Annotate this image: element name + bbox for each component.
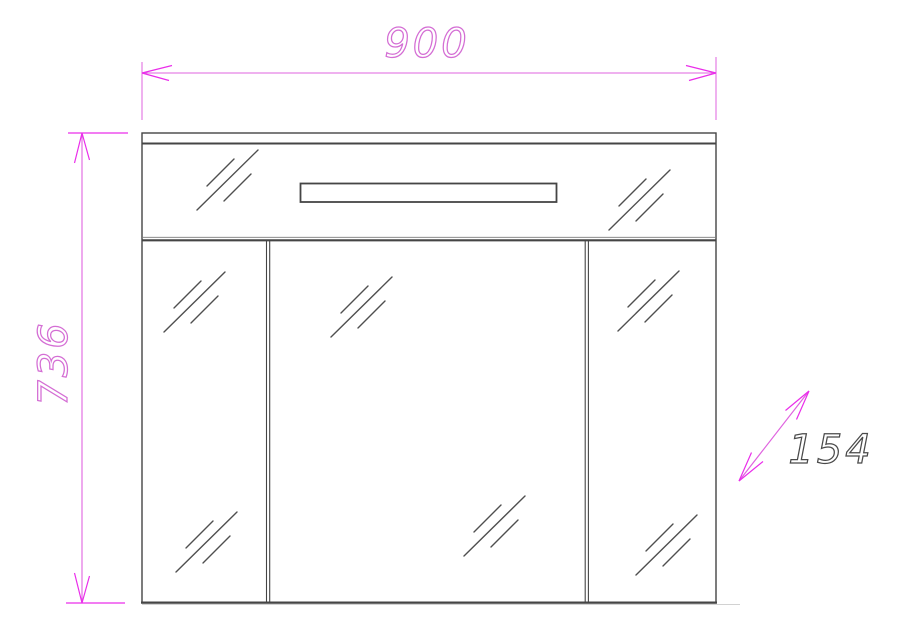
hatch-left-door-lower bbox=[176, 512, 237, 572]
technical-drawing: 900 736 154 bbox=[0, 0, 900, 636]
height-dim-label: 736 bbox=[31, 320, 77, 405]
hatch-right-door-upper bbox=[618, 271, 679, 331]
hatch-top-left-panel bbox=[197, 150, 258, 210]
hatch-top-right-panel bbox=[609, 170, 670, 230]
light-fixture bbox=[301, 184, 557, 203]
hatch-right-door-lower bbox=[636, 515, 697, 575]
door-dividers bbox=[267, 241, 589, 603]
hatch-center-door-upper bbox=[331, 277, 392, 337]
depth-dim-label: 154 bbox=[788, 427, 873, 473]
cabinet-outline bbox=[141, 133, 740, 605]
cabinet-outer-box bbox=[142, 133, 716, 603]
drawing-svg: 900 736 154 bbox=[0, 0, 900, 636]
height-dimension: 736 bbox=[31, 133, 128, 603]
width-dimension: 900 bbox=[142, 21, 716, 120]
mirror-hatches bbox=[164, 150, 697, 575]
hatch-center-door-lower bbox=[464, 496, 525, 556]
hatch-left-door-upper bbox=[164, 272, 225, 332]
depth-dimension: 154 bbox=[739, 391, 874, 481]
width-dim-label: 900 bbox=[384, 21, 469, 67]
